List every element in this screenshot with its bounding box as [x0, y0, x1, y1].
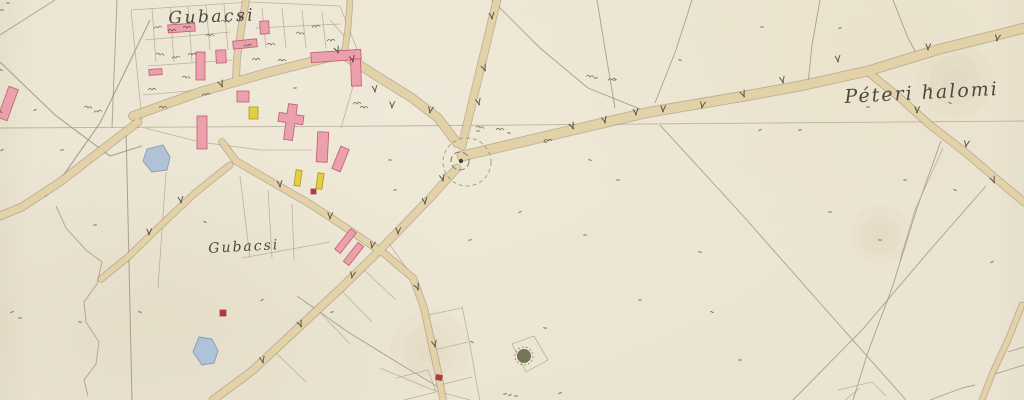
building-pink [216, 50, 227, 64]
building-pink [0, 86, 18, 120]
road-village-ne-road [133, 54, 457, 143]
speck-mark [0, 149, 3, 150]
building-pink [197, 116, 207, 149]
building-pink [316, 132, 329, 163]
speck-mark [503, 394, 506, 395]
speck-mark [698, 252, 701, 253]
ponds-layer [143, 145, 218, 365]
scrub-symbol [476, 126, 484, 129]
speck-mark [260, 299, 263, 300]
speck-mark [990, 261, 993, 262]
road-edges-layer [0, 0, 1024, 400]
building-pink [260, 21, 270, 34]
speck-mark [678, 60, 681, 61]
map-stage: Gubacsi Gubacsi Péteri halomi [0, 0, 1024, 400]
building-pink [149, 69, 162, 76]
survey-line-triangle-1 [492, 0, 640, 109]
speck-mark [594, 77, 597, 78]
scrub-symbol [206, 34, 214, 36]
parcel-line [845, 388, 860, 400]
scrub-symbol [296, 32, 304, 35]
survey-line-corner-par-1 [1008, 347, 1024, 352]
building-yellow [294, 170, 302, 187]
survey-line-sheet-horizontal [0, 121, 1024, 128]
speck-mark [588, 159, 591, 160]
building-red [220, 310, 226, 316]
mound-outer-circle [443, 138, 491, 186]
survey-line-corner-par-3 [930, 385, 975, 400]
speck-mark [543, 328, 546, 329]
parcel-line [302, 10, 306, 48]
parcel-line [131, 10, 142, 120]
parcel-line [872, 382, 886, 396]
building-red [311, 189, 316, 194]
speck-mark [798, 130, 801, 131]
scrub-symbol [172, 56, 180, 59]
building-red [436, 375, 443, 381]
scrub-symbol [353, 102, 361, 104]
speck-mark [508, 394, 511, 395]
building-yellow [249, 107, 258, 119]
road-corner-road [982, 305, 1022, 400]
map-label-gubacsi-south: Gubacsi [208, 237, 280, 257]
parcel-line [292, 204, 294, 260]
speck-mark [10, 311, 13, 312]
survey-line-ne-track [45, 20, 150, 197]
speck-mark [507, 133, 510, 134]
speck-mark [468, 240, 471, 241]
speck-mark [953, 189, 956, 190]
parcel-line [362, 268, 396, 300]
building-pink [237, 91, 249, 102]
scrub-symbol [496, 128, 504, 130]
parcel-line [318, 310, 350, 344]
scrub-symbol [586, 75, 594, 78]
tree-clump-group [515, 347, 533, 365]
scrub-symbol [267, 43, 275, 45]
speck-mark [0, 70, 3, 71]
parcel-line [152, 8, 156, 62]
speck-mark [33, 109, 36, 110]
survey-line-stream-meander [56, 206, 102, 396]
road-village-sw-road [0, 122, 138, 216]
parcel-line [838, 382, 872, 390]
scrub-symbol [182, 76, 190, 79]
parcel-line [250, 2, 340, 6]
scrub-symbol [252, 58, 260, 60]
map-canvas: Gubacsi Gubacsi Péteri halomi [0, 0, 1024, 400]
speck-mark [138, 312, 141, 313]
survey-line-triangle-3 [655, 0, 692, 103]
survey-line-nw-track [0, 62, 142, 156]
pond [143, 145, 170, 172]
scrub-symbol [188, 53, 196, 55]
speck-mark [518, 211, 521, 212]
building-cross [276, 103, 306, 142]
scrub-symbol [148, 88, 156, 90]
building-pink [196, 52, 205, 80]
scrub-symbol [360, 106, 368, 108]
speck-mark [838, 28, 841, 29]
survey-line-top-right-2 [893, 0, 919, 58]
speck-mark [470, 341, 473, 342]
parcel-line [145, 32, 230, 40]
road-north-road [462, 0, 497, 146]
scrub-symbol [327, 39, 335, 41]
parcel-line [340, 289, 372, 322]
map-label-gubacsi-north: Gubacsi [168, 5, 255, 28]
survey-line-cross-se-2 [853, 141, 941, 400]
speck-mark [613, 80, 616, 81]
parcel-line [274, 351, 306, 382]
speck-mark [758, 129, 761, 130]
survey-line-corner-line [0, 0, 55, 35]
pond [193, 337, 218, 365]
building-yellow [316, 173, 324, 190]
speck-mark [60, 150, 63, 151]
tree-symbol [389, 101, 395, 109]
mound-center-dot [459, 159, 463, 163]
speck-mark [18, 318, 21, 319]
scrub-symbol [154, 26, 162, 29]
speck-mark [558, 393, 561, 394]
tree-symbol [779, 76, 785, 84]
tree-clump [517, 349, 531, 363]
building-pink [332, 146, 349, 172]
parcel-line [282, 8, 286, 48]
survey-line-sheet-vertical-top [112, 0, 117, 127]
map-features-layer [0, 0, 1024, 400]
mound-group [443, 138, 491, 186]
scrub-symbol [156, 53, 164, 56]
survey-line-top-right-1 [808, 0, 820, 84]
scrub-symbol [278, 59, 286, 61]
parcel-lines-layer [131, 2, 943, 400]
survey-line-sheet-vertical-bottom [126, 127, 132, 400]
parcel-line [322, 12, 326, 48]
scrub-symbol [84, 106, 92, 109]
tree-symbol [835, 55, 840, 62]
tree-symbol [372, 85, 377, 92]
survey-lines-layer [0, 0, 1024, 400]
building-pink [351, 59, 362, 86]
paper-stain [870, 225, 890, 245]
roads-layer [0, 0, 1024, 400]
survey-line-triangle-2 [597, 0, 615, 108]
speck-mark [330, 312, 333, 313]
speck-mark [203, 221, 206, 222]
speck-mark [710, 311, 713, 312]
scrub-symbol [94, 110, 102, 113]
